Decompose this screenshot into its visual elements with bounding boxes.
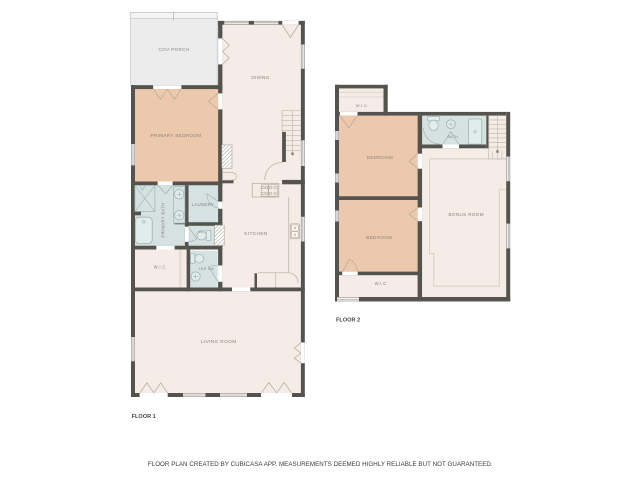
svg-text:BEDROOM: BEDROOM [367,155,393,160]
svg-text:FLOOR 1: FLOOR 1 [132,414,156,420]
svg-text:W.I.C: W.I.C [375,281,387,286]
svg-text:BATH: BATH [447,135,458,139]
svg-text:PRIMARY BATH: PRIMARY BATH [161,202,166,237]
svg-text:FLOOR PLAN CREATED BY CUBICASA: FLOOR PLAN CREATED BY CUBICASA APP. MEAS… [148,461,493,468]
svg-text:DINING: DINING [251,75,269,80]
svg-text:W.I.C.: W.I.C. [154,264,168,269]
svg-text:BONUS ROOM: BONUS ROOM [448,212,483,217]
svg-text:WC: WC [199,230,206,234]
svg-text:W.I.C: W.I.C [356,103,368,108]
svg-text:PRIMARY BEDROOM: PRIMARY BEDROOM [150,133,201,138]
svg-text:LIVING ROOM: LIVING ROOM [201,339,237,345]
svg-text:FLOOR 2: FLOOR 2 [336,318,360,324]
svg-text:KITCHEN: KITCHEN [244,231,268,237]
svg-text:COV PORCH: COV PORCH [159,47,190,52]
svg-text:HIS BA: HIS BA [199,266,214,271]
svg-text:LAUNDRY: LAUNDRY [192,202,214,207]
svg-text:BEDROOM: BEDROOM [366,235,392,240]
